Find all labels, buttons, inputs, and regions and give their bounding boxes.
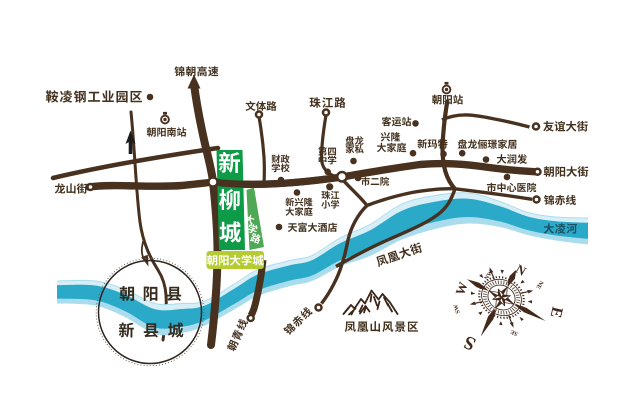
svg-text:NE: NE bbox=[534, 279, 543, 289]
svg-text:SE: SE bbox=[510, 328, 519, 337]
svg-text:SW: SW bbox=[453, 303, 462, 314]
svg-text:S: S bbox=[461, 331, 479, 355]
svg-text:W: W bbox=[452, 280, 471, 297]
svg-text:E: E bbox=[547, 305, 566, 319]
svg-text:N: N bbox=[513, 261, 529, 279]
